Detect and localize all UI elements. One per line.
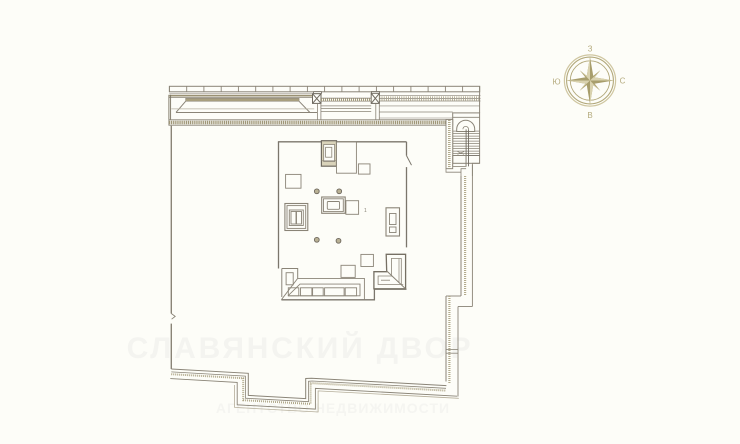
svg-text:В: В	[587, 111, 592, 120]
svg-text:СЛАВЯНСКИЙ ДВОР: СЛАВЯНСКИЙ ДВОР	[127, 331, 474, 365]
svg-text:С: С	[620, 77, 626, 86]
svg-text:З: З	[588, 45, 593, 54]
svg-text:Ю: Ю	[552, 78, 560, 87]
svg-text:1: 1	[364, 208, 367, 214]
